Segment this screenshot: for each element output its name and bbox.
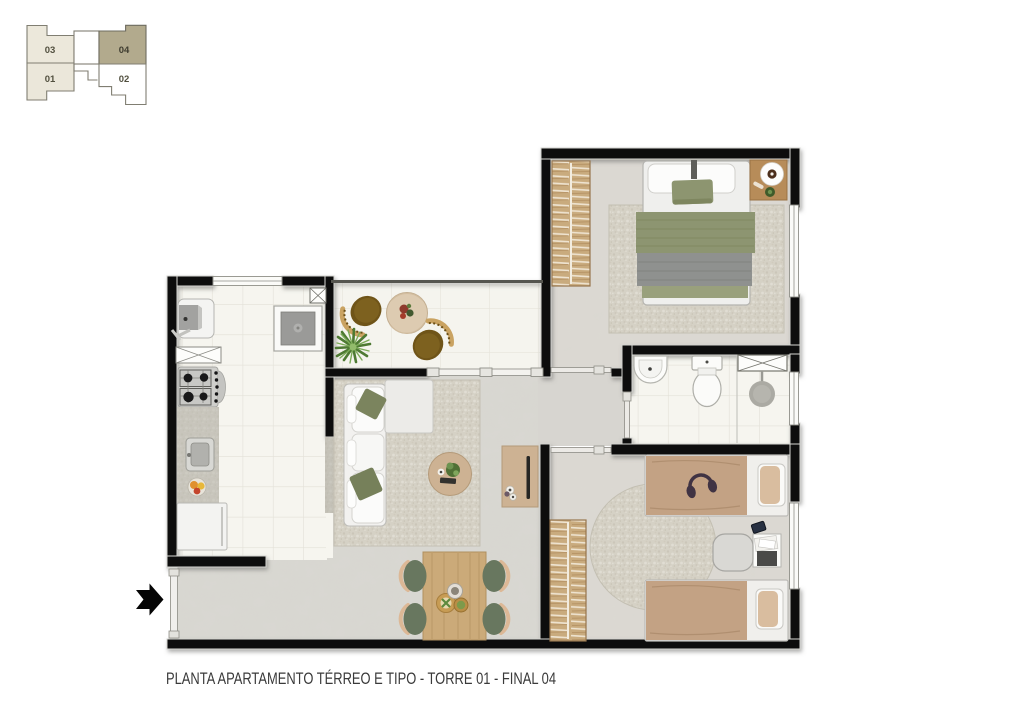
- svg-text:02: 02: [119, 74, 130, 85]
- svg-text:PLANTA APARTAMENTO TÉRREO E TI: PLANTA APARTAMENTO TÉRREO E TIPO - TORRE…: [166, 669, 556, 688]
- svg-text:04: 04: [119, 45, 130, 56]
- svg-text:03: 03: [45, 45, 56, 56]
- svg-text:01: 01: [45, 74, 56, 85]
